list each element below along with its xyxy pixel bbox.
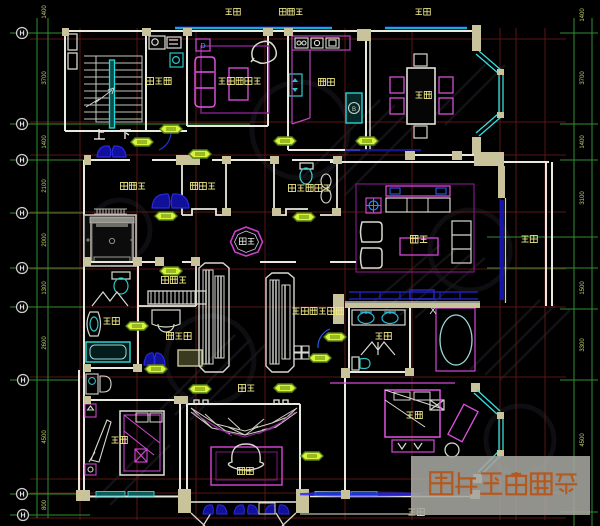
svg-text:3300: 3300 [580,338,586,352]
svg-text:3700: 3700 [42,71,48,85]
svg-text:3100: 3100 [580,191,586,205]
svg-text:D: D [200,43,205,50]
svg-text:1300: 1300 [42,281,48,295]
svg-text:2000: 2000 [42,233,48,247]
svg-text:1400: 1400 [42,5,48,19]
svg-text:1400: 1400 [42,135,48,149]
svg-text:4500: 4500 [42,430,48,444]
svg-text:1400: 1400 [580,135,586,149]
svg-text:2100: 2100 [42,179,48,193]
svg-text:3700: 3700 [580,71,586,85]
svg-text:B: B [352,107,356,113]
svg-text:1500: 1500 [580,281,586,295]
svg-text:1400: 1400 [580,8,586,22]
svg-text:800: 800 [42,499,48,510]
svg-text:4500: 4500 [580,433,586,447]
svg-text:2600: 2600 [42,336,48,350]
